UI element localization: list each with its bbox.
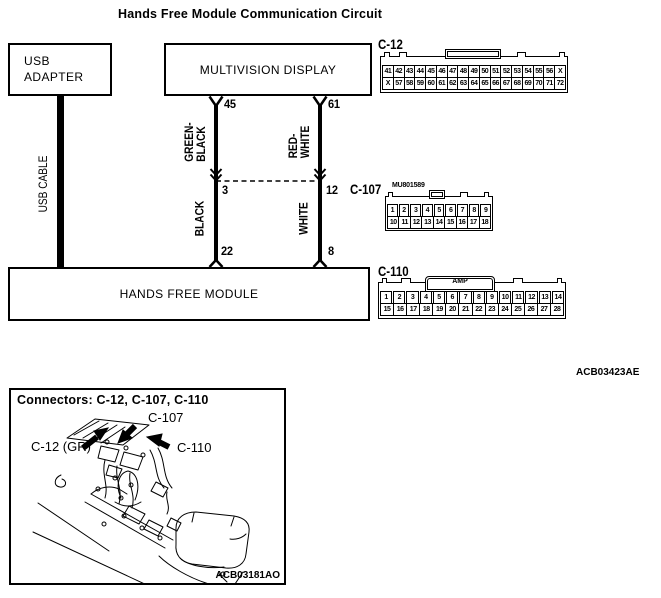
connector-tab [557,278,562,283]
wire-fork-icon [314,97,327,107]
hands-free-module-box: HANDS FREE MODULE [8,267,370,321]
pin-cell: 20 [445,303,459,316]
pin-cell: 16 [393,303,407,316]
connector-tab [388,192,393,197]
figure-label-c12: C-12 (GR) [31,439,91,454]
connector-location-figure: Connectors: C-12, C-107, C-110 C-107 C-1… [9,388,286,585]
wire-color-black: BLACK [195,192,208,245]
amp-brand-label: AMP [426,278,494,285]
figure-label-c107: C-107 [148,410,183,425]
connector-chevron-icon [314,260,327,267]
wire-color-green-black: GREEN- BLACK [184,116,208,169]
connector-tab [401,278,411,283]
hands-free-module-label: HANDS FREE MODULE [120,287,259,301]
usb-adapter-label: USB ADAPTER [24,54,83,85]
usb-adapter-box: USB ADAPTER [8,43,112,96]
multivision-display-box: MULTIVISION DISPLAY [164,43,372,96]
connector-tab [484,192,489,197]
connector-chevron-icon [210,260,223,267]
pin-row: 1516171819202122232425262728 [380,303,564,316]
connector-c107-label: C-107 [350,181,381,197]
pin-61: 61 [328,97,340,111]
connector-tab [460,192,468,197]
connector-tab [559,52,565,57]
connector-keyway [429,190,445,199]
figure-title: Connectors: C-12, C-107, C-110 [17,393,208,407]
connector-tab [517,52,526,57]
figure-label-c110: C-110 [177,440,211,455]
connector-tab [513,278,523,283]
connector-c12-pinout: 41424344454647484950515253545556X X57585… [380,56,568,93]
pin-cell: 28 [550,303,564,316]
pin-cell: 24 [498,303,512,316]
pin-12: 12 [326,183,338,197]
pin-cell: 18 [419,303,433,316]
pin-cell: 23 [485,303,499,316]
arrow-to-c110-icon [147,434,162,446]
connector-c107-pinout: 123456789 101112131415161718 [385,196,493,231]
connector-keyway [445,49,501,59]
pin-3: 3 [222,183,228,197]
wire-color-red-white: RED- WHITE [288,116,312,169]
pin-cell: 22 [472,303,486,316]
connector-tab [382,278,387,283]
pointer-arrows [83,426,169,448]
pin-row: 101112131415161718 [387,216,491,229]
pin-22: 22 [221,244,233,258]
connector-c12-label: C-12 [378,36,403,52]
wire-fork-icon [210,97,223,107]
pin-cell: 21 [458,303,472,316]
multivision-display-label: MULTIVISION DISPLAY [200,63,337,77]
pin-45: 45 [224,97,236,111]
pin-8: 8 [328,244,334,258]
pin-cell: 15 [380,303,394,316]
usb-cable-label: USB CABLE [37,149,51,219]
pin-cell: 17 [406,303,420,316]
pin-cell: 18 [479,216,491,229]
wiring-diagram-page: Hands Free Module Communication Circuit … [0,0,661,598]
connector-c107-part-number: MU801589 [392,182,425,189]
connector-tab [399,52,407,57]
pin-row: X57585960616263646566676869707172 [382,77,566,90]
pin-cell: 19 [432,303,446,316]
diagram-ref-code: ACB03423AE [576,367,639,378]
connector-c110-label: C-110 [378,263,409,279]
pin-cell: 72 [554,77,566,90]
connector-keyway-amp: AMP [425,276,495,292]
connector-tab [384,52,390,57]
wire-color-white: WHITE [299,192,312,245]
figure-ref-code: ACB03181AO [216,570,280,581]
pin-cell: 25 [511,303,525,316]
pin-cell: 26 [524,303,538,316]
pin-cell: 27 [537,303,551,316]
connector-c110-pinout: AMP 1234567891011121314 1516171819202122… [378,282,566,319]
